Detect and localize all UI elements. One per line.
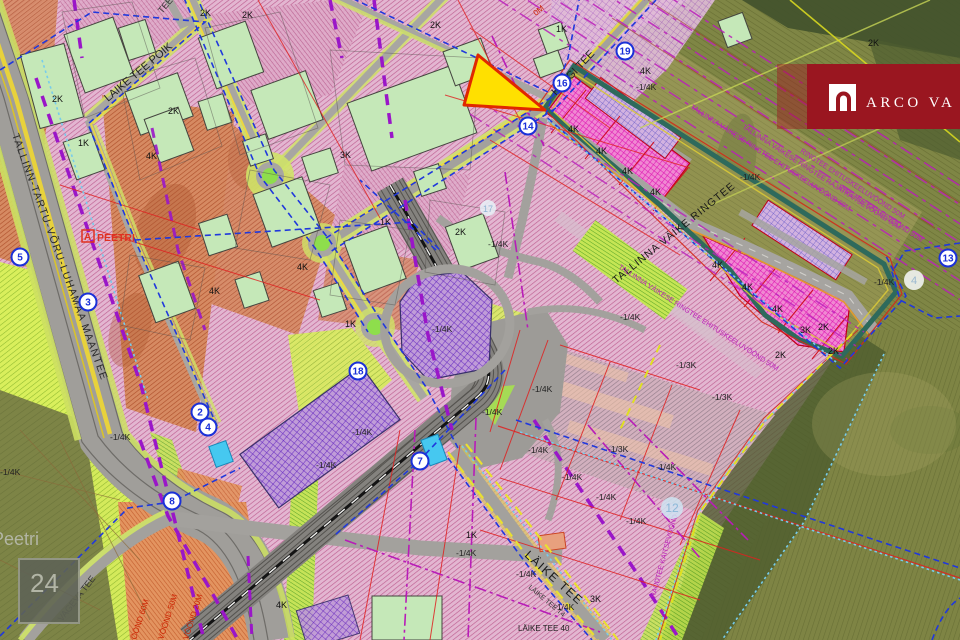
- svg-text:2K: 2K: [828, 346, 839, 356]
- svg-text:18: 18: [352, 367, 364, 378]
- svg-text:-1/4K: -1/4K: [656, 462, 677, 472]
- svg-text:-1/4K: -1/4K: [626, 516, 647, 526]
- svg-text:4K: 4K: [209, 286, 220, 296]
- svg-text:2K: 2K: [455, 227, 466, 237]
- svg-text:3K: 3K: [340, 150, 351, 160]
- svg-text:16: 16: [556, 79, 568, 90]
- svg-text:24: 24: [30, 568, 59, 598]
- svg-text:4: 4: [911, 275, 917, 287]
- svg-text:17: 17: [483, 204, 493, 214]
- svg-text:19: 19: [619, 47, 631, 58]
- svg-text:2K: 2K: [775, 350, 786, 360]
- svg-text:4K: 4K: [622, 166, 633, 176]
- svg-text:2K: 2K: [200, 8, 211, 18]
- svg-text:-1/4K: -1/4K: [528, 445, 549, 455]
- svg-text:2K: 2K: [430, 20, 441, 30]
- svg-text:-1/3K: -1/3K: [712, 392, 733, 402]
- svg-text:13: 13: [942, 254, 954, 265]
- svg-text:1K: 1K: [345, 319, 356, 329]
- svg-text:8: 8: [169, 497, 175, 508]
- svg-text:4K: 4K: [772, 304, 783, 314]
- svg-text:4K: 4K: [712, 260, 723, 270]
- svg-text:-1/4K: -1/4K: [636, 82, 657, 92]
- svg-text:3K: 3K: [590, 594, 601, 604]
- svg-text:2K: 2K: [52, 94, 63, 104]
- svg-text:2K: 2K: [242, 10, 253, 20]
- svg-text:-1/4K: -1/4K: [110, 432, 131, 442]
- svg-text:1K: 1K: [78, 138, 89, 148]
- svg-text:-1/4K: -1/4K: [596, 492, 617, 502]
- svg-text:-1/4K: -1/4K: [482, 407, 503, 417]
- svg-text:-1/3K: -1/3K: [676, 360, 697, 370]
- svg-text:-1/4K: -1/4K: [488, 239, 509, 249]
- svg-text:-1/4K: -1/4K: [316, 460, 337, 470]
- svg-text:2K: 2K: [168, 106, 179, 116]
- svg-text:-1/4K: -1/4K: [516, 569, 537, 579]
- svg-text:4K: 4K: [568, 124, 579, 134]
- svg-text:-1/4K: -1/4K: [554, 602, 575, 612]
- svg-text:-1/4K: -1/4K: [874, 277, 895, 287]
- svg-text:12: 12: [665, 501, 679, 515]
- svg-text:-1/4K: -1/4K: [456, 548, 477, 558]
- svg-text:Peetri: Peetri: [0, 529, 39, 549]
- svg-text:ARCO VA: ARCO VA: [866, 95, 955, 111]
- svg-text:-1/4K: -1/4K: [352, 427, 373, 437]
- svg-text:14: 14: [522, 122, 534, 133]
- svg-text:A: A: [84, 232, 91, 243]
- svg-text:-1/4K: -1/4K: [432, 324, 453, 334]
- svg-text:3K: 3K: [800, 325, 811, 335]
- svg-text:-1/4K: -1/4K: [620, 312, 641, 322]
- svg-text:4K: 4K: [297, 262, 308, 272]
- svg-text:-1/4K: -1/4K: [562, 472, 583, 482]
- svg-text:LÄIKE TEE 40: LÄIKE TEE 40: [518, 624, 570, 633]
- svg-text:4K: 4K: [650, 187, 661, 197]
- svg-text:1K: 1K: [556, 24, 567, 34]
- svg-text:4K: 4K: [276, 600, 287, 610]
- svg-text:2K: 2K: [868, 38, 879, 48]
- svg-text:-1/4K: -1/4K: [740, 172, 761, 182]
- svg-text:7: 7: [417, 457, 423, 468]
- svg-text:4K: 4K: [596, 146, 607, 156]
- svg-text:-1/3K: -1/3K: [608, 444, 629, 454]
- svg-text:4K: 4K: [742, 282, 753, 292]
- svg-text:-1/4K: -1/4K: [532, 384, 553, 394]
- svg-text:2: 2: [197, 408, 203, 419]
- svg-text:1K: 1K: [380, 217, 391, 227]
- svg-text:4: 4: [205, 423, 211, 434]
- svg-text:4K: 4K: [146, 151, 157, 161]
- svg-text:-1/4K: -1/4K: [0, 467, 21, 477]
- svg-text:3: 3: [85, 298, 91, 309]
- svg-text:1K: 1K: [466, 530, 477, 540]
- svg-text:5: 5: [17, 253, 23, 264]
- svg-text:PEETRI: PEETRI: [97, 232, 135, 244]
- svg-text:4K: 4K: [640, 66, 651, 76]
- svg-text:2K: 2K: [818, 322, 829, 332]
